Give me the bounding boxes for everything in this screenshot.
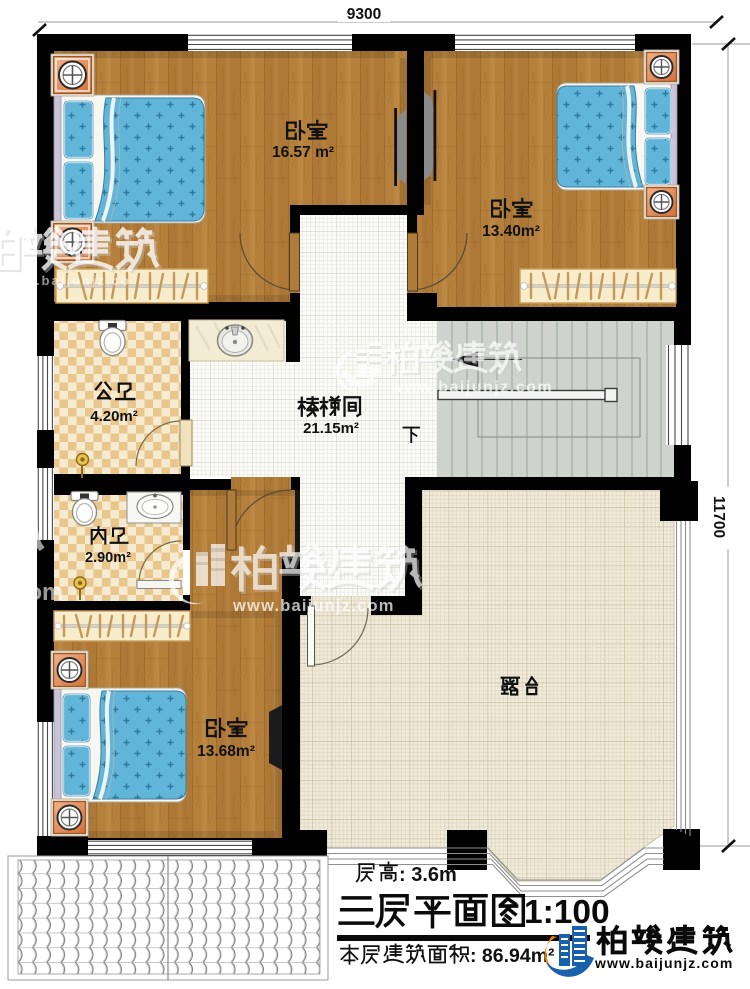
svg-text:16.57 m²: 16.57 m² bbox=[272, 144, 334, 161]
svg-text:: 3.6m: : 3.6m bbox=[399, 864, 457, 886]
svg-text:www.baijunjz.co: www.baijunjz.co bbox=[0, 273, 131, 288]
svg-text:13.40m²: 13.40m² bbox=[482, 223, 540, 240]
svg-text:13.68m²: 13.68m² bbox=[197, 743, 255, 760]
svg-text:9300: 9300 bbox=[347, 6, 381, 23]
svg-text:11700: 11700 bbox=[710, 496, 727, 538]
svg-text:1:100: 1:100 bbox=[524, 894, 610, 931]
svg-text:4.20m²: 4.20m² bbox=[90, 408, 138, 425]
svg-text:21.15m²: 21.15m² bbox=[303, 420, 359, 437]
svg-text:2.90m²: 2.90m² bbox=[85, 550, 131, 566]
svg-text:www.baijunjz.com: www.baijunjz.com bbox=[232, 597, 395, 615]
svg-text:www.baijunjz.com: www.baijunjz.com bbox=[390, 379, 553, 396]
svg-text:a.com: a.com bbox=[0, 579, 63, 606]
svg-text:www.baijunjz.com: www.baijunjz.com bbox=[594, 955, 733, 971]
svg-text:: 86.94m²: : 86.94m² bbox=[470, 945, 555, 967]
